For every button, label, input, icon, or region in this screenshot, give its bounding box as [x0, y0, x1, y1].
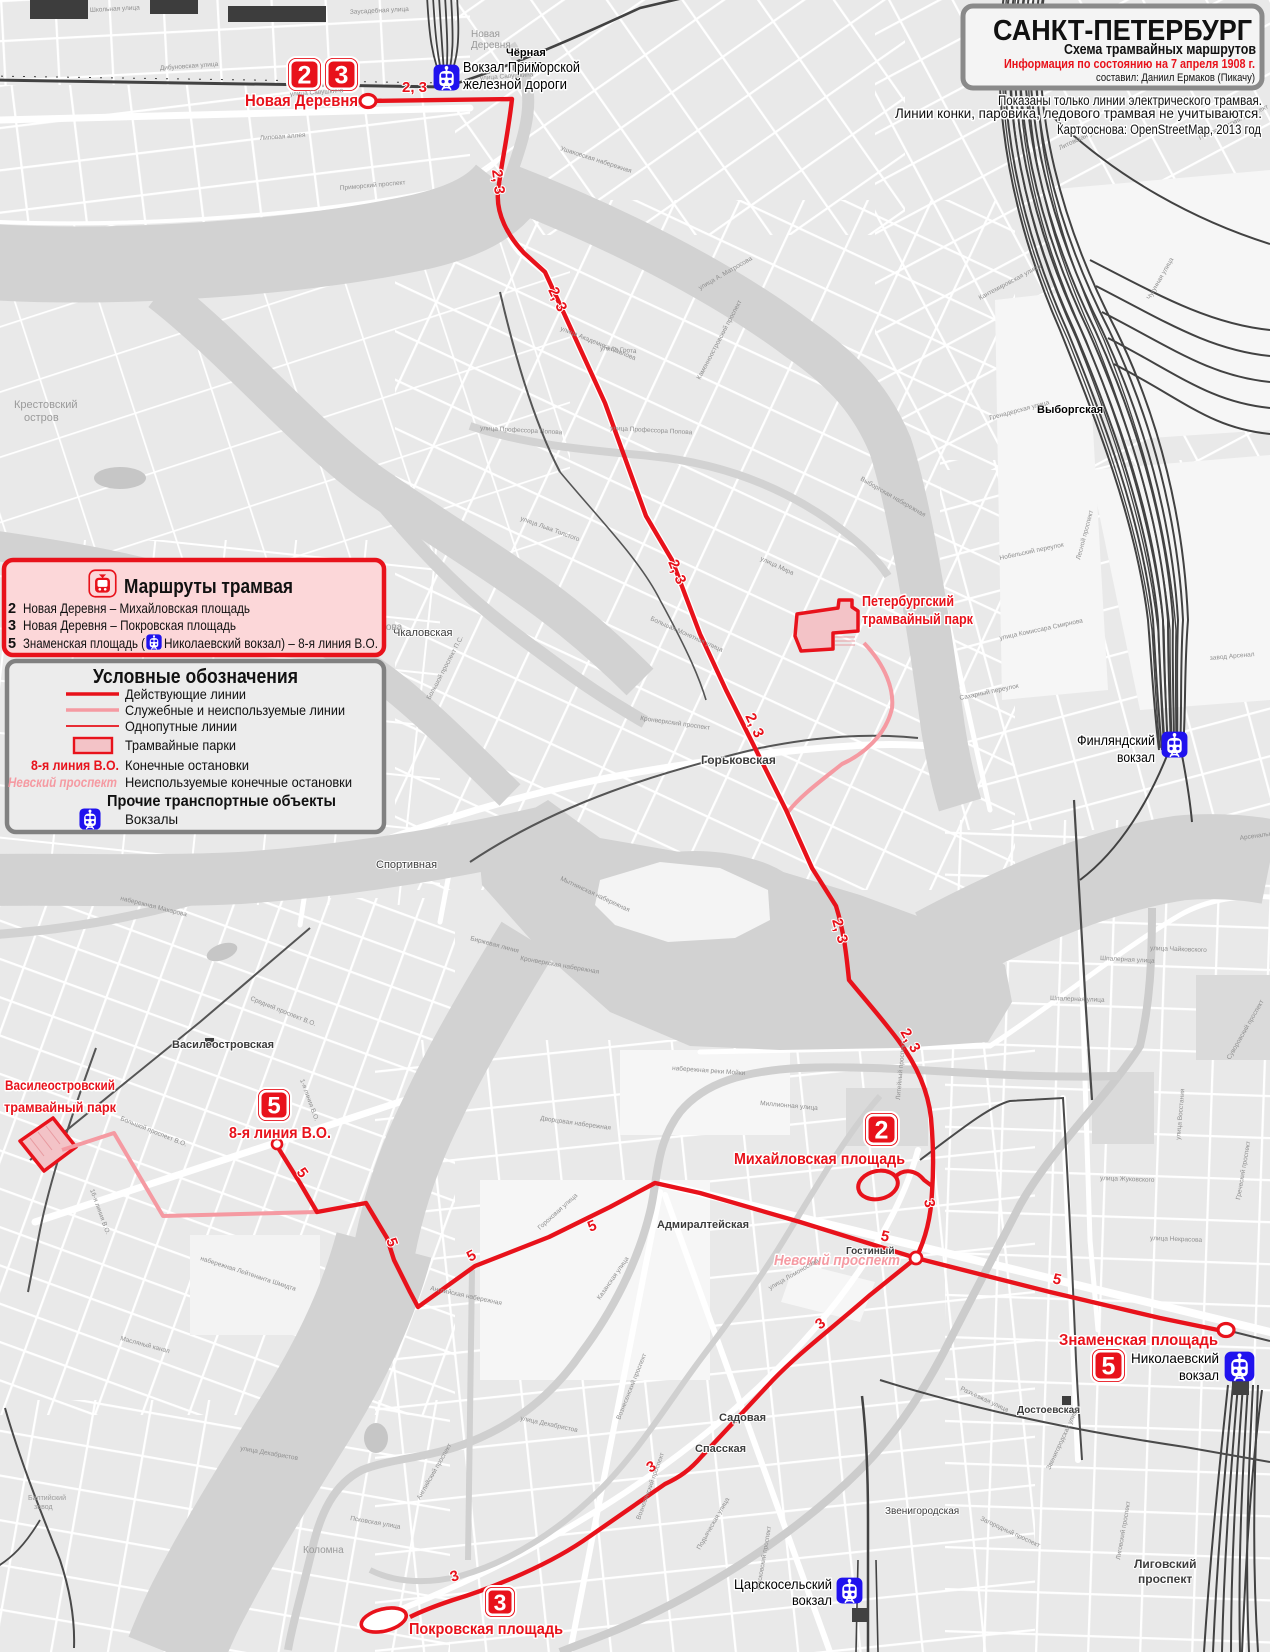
svg-text:трамвайный парк: трамвайный парк [862, 611, 973, 628]
svg-text:Невский проспект: Невский проспект [8, 774, 117, 790]
svg-text:2, 3: 2, 3 [488, 168, 508, 195]
svg-text:Финляндский: Финляндский [1077, 733, 1155, 748]
svg-text:Петербургский: Петербургский [862, 593, 954, 610]
svg-text:Покровская площадь: Покровская площадь [409, 1621, 563, 1638]
svg-text:2: 2 [8, 601, 16, 617]
svg-text:2: 2 [298, 62, 312, 90]
svg-text:Новая: Новая [471, 29, 500, 40]
svg-text:завод: завод [34, 1504, 53, 1511]
svg-text:Неиспользуемые конечные остано: Неиспользуемые конечные остановки [125, 774, 352, 790]
svg-text:Конечные остановки: Конечные остановки [125, 757, 249, 773]
svg-text:Трамвайные парки: Трамвайные парки [125, 737, 236, 753]
svg-text:5: 5 [1102, 1353, 1116, 1381]
svg-text:вокзал: вокзал [1179, 1367, 1219, 1383]
svg-text:вокзал: вокзал [792, 1592, 832, 1608]
svg-text:Василеостровский: Василеостровский [5, 1077, 115, 1093]
svg-text:Чёрная: Чёрная [506, 47, 546, 59]
svg-text:Василеостровская: Василеостровская [172, 1039, 274, 1051]
svg-text:Садовая: Садовая [719, 1412, 766, 1424]
svg-text:Спортивная: Спортивная [376, 859, 437, 871]
svg-text:Гостиный: Гостиный [846, 1246, 894, 1257]
svg-text:8-я линия В.О.: 8-я линия В.О. [229, 1125, 331, 1142]
svg-text:5: 5 [8, 636, 16, 652]
svg-text:Знаменская площадь (: Знаменская площадь ( [23, 635, 145, 651]
svg-text:Вокзалы: Вокзалы [125, 811, 178, 827]
svg-text:Знаменская площадь: Знаменская площадь [1059, 1332, 1218, 1349]
svg-text:Условные обозначения: Условные обозначения [93, 665, 298, 688]
svg-text:Николаевский вокзал) – 8-я лин: Николаевский вокзал) – 8-я линия В.О. [164, 635, 378, 651]
svg-text:Новая Деревня – Михайловская п: Новая Деревня – Михайловская площадь [23, 600, 250, 616]
svg-text:Адмиралтейская: Адмиралтейская [657, 1219, 749, 1231]
svg-text:вокзал: вокзал [1117, 750, 1155, 765]
svg-text:проспект: проспект [1138, 1572, 1192, 1586]
svg-text:Крестовский: Крестовский [14, 399, 78, 411]
svg-text:остров: остров [24, 412, 59, 424]
svg-text:Служебные и неиспользуемые лин: Служебные и неиспользуемые линии [125, 702, 345, 718]
svg-text:Коломна: Коломна [303, 1545, 344, 1556]
svg-text:Балтийский: Балтийский [28, 1494, 66, 1502]
svg-text:Маршруты трамвая: Маршруты трамвая [124, 576, 293, 598]
svg-text:3: 3 [335, 62, 349, 90]
svg-text:Михайловская площадь: Михайловская площадь [734, 1151, 905, 1168]
svg-text:Однопутные линии: Однопутные линии [125, 718, 237, 734]
svg-text:составил: Даниил Ермаков (Пика: составил: Даниил Ермаков (Пикачу) [1096, 72, 1255, 84]
svg-text:5: 5 [267, 1093, 280, 1120]
svg-text:Действующие линии: Действующие линии [125, 686, 246, 702]
svg-text:Новая Деревня – Покровская пло: Новая Деревня – Покровская площадь [23, 617, 236, 633]
svg-text:Деревня: Деревня [471, 40, 511, 51]
svg-text:Спасская: Спасская [695, 1443, 746, 1455]
svg-text:Линии конки, паровика, ледовог: Линии конки, паровика, ледового трамвая … [895, 106, 1262, 121]
svg-text:трамвайный парк: трамвайный парк [4, 1099, 117, 1115]
svg-text:Информация по состоянию на 7 а: Информация по состоянию на 7 апреля 1908… [1004, 56, 1255, 71]
svg-text:3: 3 [494, 1589, 507, 1615]
svg-text:Прочие транспортные объекты: Прочие транспортные объекты [107, 793, 336, 810]
svg-text:Лиговский: Лиговский [1134, 1557, 1196, 1571]
svg-text:Горьковская: Горьковская [701, 753, 776, 767]
svg-text:3: 3 [8, 618, 16, 634]
svg-text:Звенигородская: Звенигородская [885, 1506, 959, 1517]
svg-text:2, 3: 2, 3 [402, 79, 427, 96]
svg-text:Николаевский: Николаевский [1131, 1350, 1219, 1366]
svg-text:8-я линия В.О.: 8-я линия В.О. [31, 757, 119, 773]
svg-text:Картооснова: OpenStreetMap, 20: Картооснова: OpenStreetMap, 2013 год [1057, 122, 1261, 137]
svg-text:2: 2 [875, 1117, 889, 1145]
svg-text:Царскосельский: Царскосельский [734, 1576, 832, 1592]
